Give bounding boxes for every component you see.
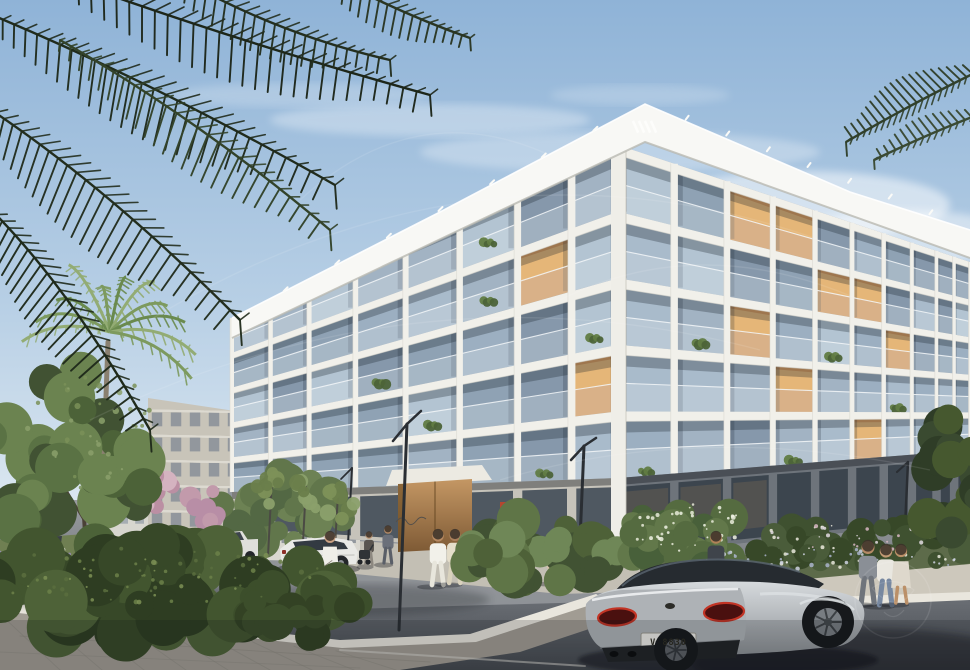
architectural-render: V 8830 [0,0,970,670]
scene-canvas: V 8830 [0,0,970,670]
license-plate-text: V 8830 [650,638,687,648]
vignette [0,620,970,670]
bentley-rear-plate: V 8830 [650,638,687,648]
